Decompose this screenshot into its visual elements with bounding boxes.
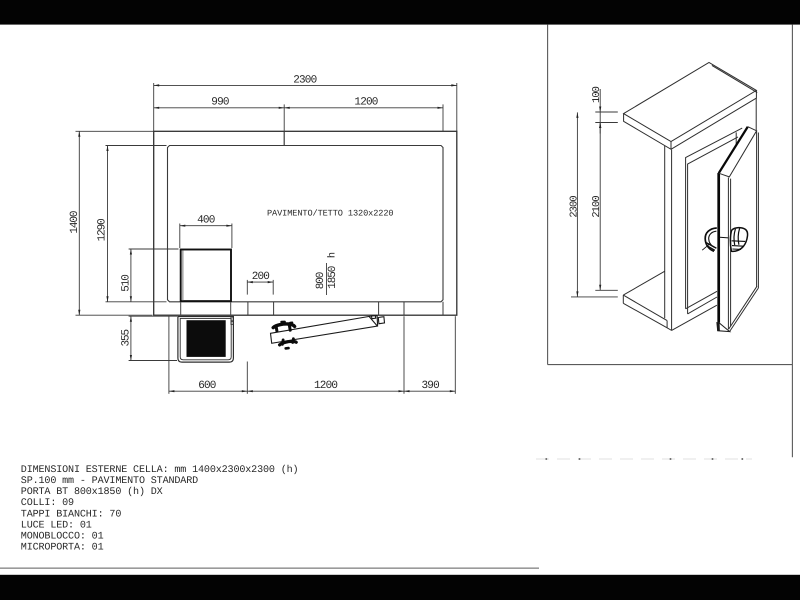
svg-text:MICROPORTA: 01: MICROPORTA: 01 [21,543,104,554]
svg-text:SP.100 mm - PAVIMENTO STANDARD: SP.100 mm - PAVIMENTO STANDARD [21,476,198,487]
svg-text:MONOBLOCCO: 01: MONOBLOCCO: 01 [21,531,104,542]
svg-text:TAPPI BIANCHI: 70: TAPPI BIANCHI: 70 [21,509,122,520]
svg-text:2300: 2300 [293,74,316,86]
svg-text:1290: 1290 [96,219,108,242]
svg-text:1850: 1850 [327,266,339,289]
svg-text:h: h [326,252,338,258]
svg-text:600: 600 [198,380,216,392]
svg-text:400: 400 [197,215,215,227]
svg-text:200: 200 [252,271,270,283]
svg-text:355: 355 [120,330,132,347]
svg-text:1200: 1200 [354,97,377,109]
svg-text:LUCE LED: 01: LUCE LED: 01 [21,520,92,531]
svg-text:PORTA BT 800x1850 (h) DX: PORTA BT 800x1850 (h) DX [21,486,163,498]
svg-text:2300: 2300 [568,196,580,218]
svg-text:390: 390 [421,380,439,392]
svg-text:990: 990 [211,97,229,109]
svg-text:2100: 2100 [591,196,603,218]
svg-text:100: 100 [591,86,603,103]
svg-text:DIMENSIONI ESTERNE CELLA: mm 1: DIMENSIONI ESTERNE CELLA: mm 1400x2300x2… [21,464,299,476]
svg-text:1200: 1200 [314,380,337,392]
svg-text:1400: 1400 [69,211,81,234]
svg-text:510: 510 [120,275,132,292]
svg-text:PAVIMENTO/TETTO 1320x2220: PAVIMENTO/TETTO 1320x2220 [267,209,393,219]
svg-text:800: 800 [315,272,327,289]
svg-text:COLLI: 09: COLLI: 09 [21,498,74,509]
